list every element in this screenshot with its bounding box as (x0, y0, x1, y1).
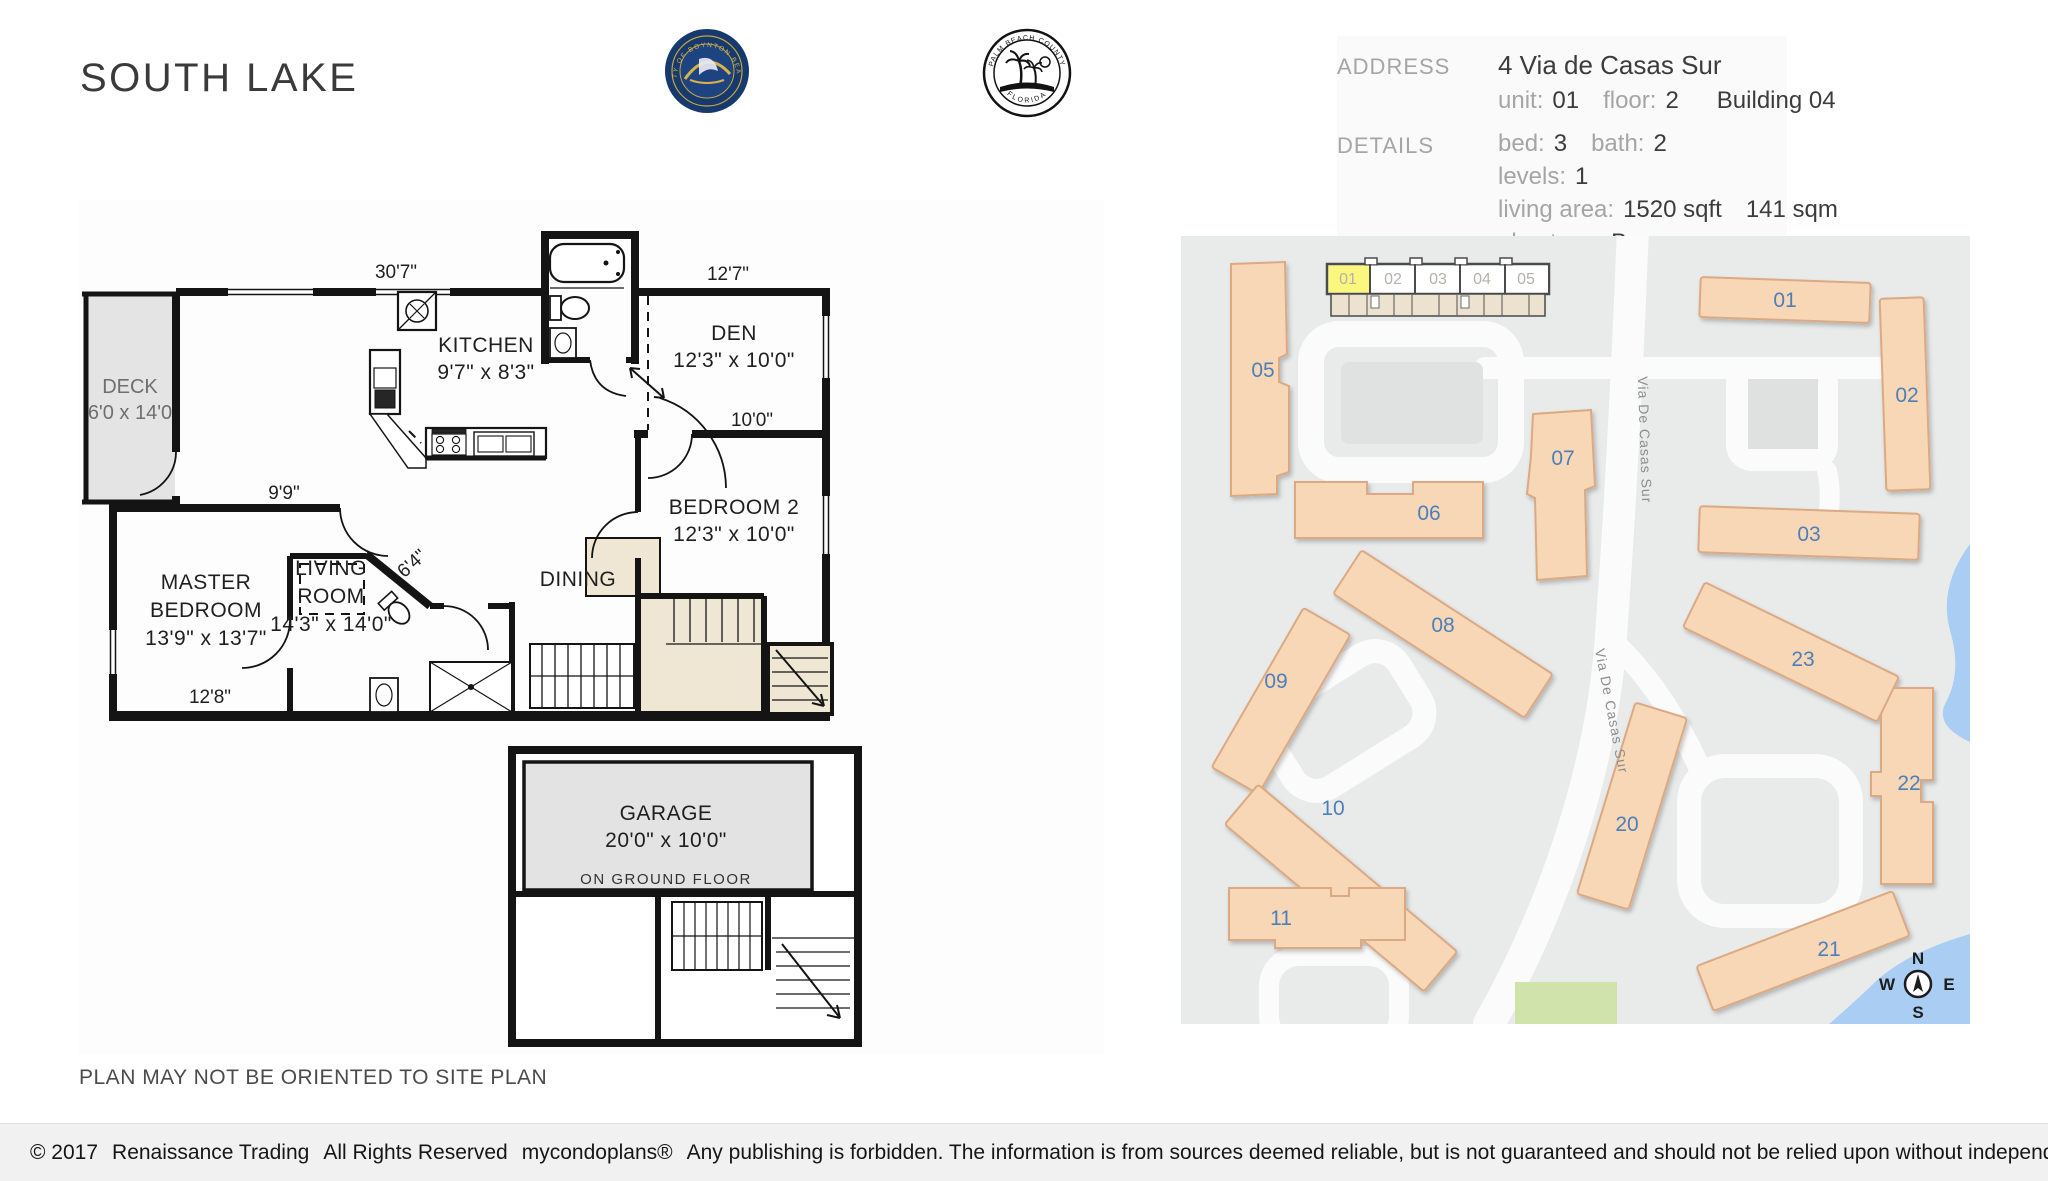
compass-n: N (1912, 949, 1924, 968)
address-value: 4 Via de Casas Sur (1498, 50, 1836, 80)
address-row: ADDRESS 4 Via de Casas Sur unit:01floor:… (1337, 50, 1787, 119)
master-label-2: BEDROOM (150, 599, 262, 622)
kitchen-label: KITCHEN (438, 334, 534, 357)
map-building-07[interactable] (1527, 410, 1595, 580)
deck-floor (88, 296, 175, 502)
living-dim: 14'3" x 14'0" (270, 613, 392, 636)
bedroom2-label: BEDROOM 2 (669, 496, 800, 519)
page-title: SOUTH LAKE (80, 56, 358, 101)
map-building-label: 21 (1817, 938, 1840, 961)
garage-structure (512, 750, 858, 1043)
master-dim: 13'9" x 13'7" (145, 627, 267, 650)
footer-copyright: © 2017 (30, 1141, 98, 1164)
road-island (1341, 362, 1483, 444)
building-value: Building 04 (1717, 87, 1836, 114)
garage-note: ON GROUND FLOOR (580, 871, 752, 888)
plaza-pad (1748, 379, 1818, 449)
kitchen-dim: 9'7" x 8'3" (437, 361, 534, 384)
dim-top: 30'7" (375, 262, 417, 283)
map-building-label: 10 (1321, 797, 1344, 820)
bedroom2-dim: 12'3" x 10'0" (673, 523, 795, 546)
boynton-beach-logo: CITY OF BOYNTON BEACH (664, 28, 750, 114)
bathroom-fixtures (550, 244, 624, 358)
bath-value: 2 (1653, 130, 1666, 157)
stairs-main (530, 644, 634, 708)
strip-unit-label: 02 (1384, 271, 1402, 288)
master-bath-fixtures (370, 591, 512, 712)
map-building-label: 03 (1797, 523, 1820, 546)
footer-company: Renaissance Trading (112, 1141, 309, 1164)
compass-s: S (1912, 1003, 1923, 1022)
unit-value: 01 (1552, 87, 1579, 114)
footer-rights: All Rights Reserved (323, 1141, 507, 1164)
building-04-strip: 01 02 03 04 05 (1327, 258, 1549, 316)
floor-plan-drawing: DECK 6'0 x 14'0 LIVING ROOM 14'3" x 14'0… (78, 200, 1104, 1055)
living-area-sqm: 141 sqm (1746, 196, 1838, 223)
den-dim: 12'3" x 10'0" (673, 349, 795, 372)
garage-label: GARAGE (620, 802, 713, 825)
map-building-label: 06 (1417, 502, 1440, 525)
bed-value: 3 (1554, 130, 1567, 157)
compass-e: E (1943, 975, 1954, 994)
bed-label: bed: (1498, 130, 1545, 157)
map-building-label: 08 (1431, 614, 1454, 637)
map-building-label: 05 (1251, 359, 1274, 382)
bath-label: bath: (1591, 130, 1644, 157)
map-building-label: 01 (1773, 289, 1796, 312)
map-building-label: 22 (1897, 772, 1920, 795)
dim-mid: 9'9" (268, 483, 300, 504)
compass-w: W (1879, 975, 1896, 994)
map-building-label: 09 (1264, 670, 1287, 693)
deck-dim: 6'0 x 14'0 (88, 402, 172, 424)
den-label: DEN (711, 322, 757, 345)
plan-sheet-page: SOUTH LAKE CITY OF BOYNTON BEACH PALM BE… (0, 0, 2048, 1181)
landing-floor (638, 596, 764, 714)
palm-beach-county-logo: PALM BEACH COUNTY FLORIDA (982, 28, 1072, 118)
site-map-drawing: 01 02 03 05 06 07 08 09 10 11 20 21 22 2… (1181, 236, 1970, 1024)
green-space (1515, 982, 1617, 1024)
unit-label: unit: (1498, 87, 1543, 114)
map-building-label: 23 (1791, 648, 1814, 671)
dining-label: DINING (540, 568, 617, 591)
floor-label: floor: (1603, 87, 1656, 114)
footer-disclaimer: Any publishing is forbidden. The informa… (687, 1141, 2048, 1165)
levels-value: 1 (1575, 163, 1588, 190)
master-label-1: MASTER (161, 571, 252, 594)
living-area-label: living area: (1498, 196, 1614, 223)
address-label: ADDRESS (1337, 50, 1498, 119)
map-building-11[interactable] (1229, 888, 1405, 948)
site-map: 01 02 03 05 06 07 08 09 10 11 20 21 22 2… (1181, 236, 1970, 1024)
map-building-label: 11 (1270, 907, 1292, 930)
dim-top-right: 12'7" (707, 264, 749, 285)
living-label-2: ROOM (297, 585, 364, 608)
stairs-entry (768, 644, 832, 714)
floor-plan: DECK 6'0 x 14'0 LIVING ROOM 14'3" x 14'0… (78, 200, 1104, 1055)
dim-right: 10'0" (731, 410, 773, 431)
deck-label: DECK (102, 376, 158, 398)
garage-dim: 20'0" x 10'0" (605, 829, 727, 852)
floor-value: 2 (1665, 87, 1678, 114)
map-building-label: 07 (1551, 447, 1574, 470)
footer: © 2017Renaissance TradingAll Rights Rese… (0, 1123, 2048, 1181)
map-building-label: 20 (1615, 813, 1638, 836)
living-area-sqft: 1520 sqft (1623, 196, 1722, 223)
footer-brand: mycondoplans® (522, 1141, 673, 1164)
living-label-1: LIVING (295, 557, 367, 580)
plan-orientation-note: PLAN MAY NOT BE ORIENTED TO SITE PLAN (79, 1066, 547, 1090)
footer-copyright-block: © 2017Renaissance TradingAll Rights Rese… (30, 1141, 687, 1165)
strip-unit-label: 01 (1339, 271, 1357, 288)
dim-bottom: 12'8" (189, 687, 231, 708)
strip-unit-label: 03 (1429, 271, 1447, 288)
strip-unit-label: 04 (1473, 271, 1491, 288)
map-building-label: 02 (1895, 384, 1918, 407)
strip-unit-label: 05 (1517, 271, 1535, 288)
levels-label: levels: (1498, 163, 1566, 190)
